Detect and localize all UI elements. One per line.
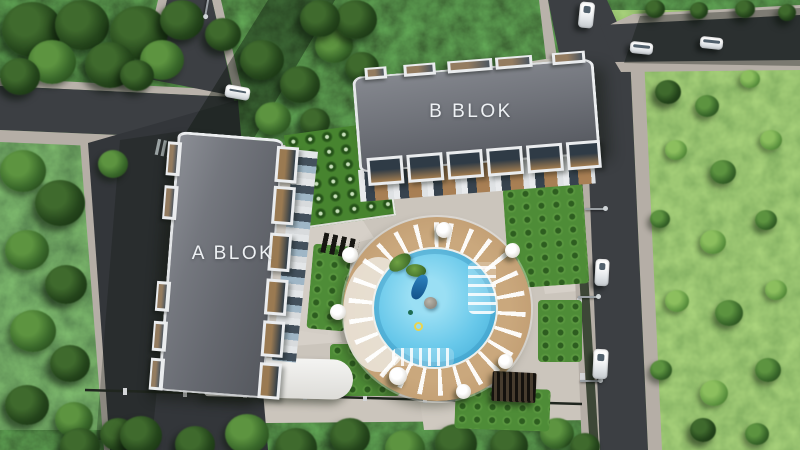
tree-canopy — [0, 58, 40, 95]
street-lamp — [580, 380, 600, 384]
balcony — [271, 186, 296, 226]
pool-umbrella — [330, 304, 346, 320]
tree-canopy — [35, 180, 85, 226]
tree-canopy — [695, 95, 719, 117]
tree-canopy — [280, 66, 320, 103]
tree-canopy — [735, 0, 755, 18]
tree-canopy — [50, 345, 90, 382]
balcony — [261, 320, 286, 358]
tree-canopy — [335, 0, 377, 39]
tree-canopy — [120, 60, 154, 91]
tree-canopy — [205, 18, 241, 51]
tree-canopy — [690, 418, 716, 442]
street-lamp — [578, 296, 598, 300]
tree-canopy — [655, 80, 681, 104]
balcony-frame — [364, 66, 387, 80]
tree-canopy — [5, 385, 49, 425]
balcony-frame — [495, 55, 533, 70]
pool-umbrella — [505, 243, 520, 258]
balcony-frame — [149, 358, 165, 391]
balcony — [486, 146, 524, 177]
balcony-frame — [152, 321, 168, 352]
car — [592, 349, 609, 380]
tree-canopy — [330, 418, 370, 450]
tree-canopy — [710, 160, 736, 184]
tree-canopy — [240, 40, 284, 80]
car-windshield — [599, 263, 606, 270]
balcony — [366, 155, 404, 186]
tree-canopy — [98, 150, 128, 178]
tree-canopy — [160, 0, 204, 40]
lamp-arm — [578, 296, 598, 298]
lamp-arm — [585, 208, 605, 210]
balcony-frame — [162, 185, 179, 220]
tree-canopy — [665, 140, 687, 160]
car-windshield — [703, 40, 719, 44]
tree-canopy — [765, 280, 787, 300]
tree-canopy — [715, 300, 743, 326]
car-windshield — [633, 45, 649, 49]
pool-umbrella — [342, 247, 358, 263]
car-windshield — [597, 353, 604, 361]
tree-canopy — [700, 380, 728, 406]
lamp-head — [596, 294, 601, 299]
tree-canopy — [255, 102, 291, 135]
tree-canopy — [740, 70, 760, 88]
tree-canopy — [45, 265, 87, 304]
pool-float — [408, 310, 413, 315]
balcony — [264, 278, 289, 316]
balcony-frame — [403, 62, 436, 76]
car-windshield — [583, 6, 590, 13]
car — [699, 36, 723, 50]
car — [578, 1, 596, 28]
block-b-label: B BLOK — [425, 101, 517, 123]
pool-umbrella — [498, 354, 513, 369]
tree-canopy — [5, 230, 49, 270]
balcony — [274, 146, 299, 184]
car — [594, 259, 609, 287]
pool-umbrella — [436, 222, 452, 238]
tree-canopy — [700, 230, 726, 254]
balcony-frame — [552, 51, 586, 66]
tree-canopy — [778, 4, 796, 21]
pool-umbrella — [456, 384, 471, 399]
pool-islet — [424, 297, 437, 309]
balcony — [566, 140, 602, 171]
pool-shelf-loungers — [468, 262, 496, 314]
pool-shelf-loungers — [392, 348, 454, 366]
swim-ring — [414, 322, 423, 331]
tree-canopy — [690, 2, 708, 19]
tree-canopy — [10, 310, 56, 352]
street-lamp — [585, 208, 605, 212]
tree-canopy — [650, 360, 672, 380]
block-a-label: A BLOK — [188, 243, 278, 265]
lamp-arm — [580, 380, 600, 382]
tree-canopy — [755, 358, 781, 382]
tree-canopy — [650, 210, 670, 228]
car — [629, 41, 653, 55]
lamp-head — [603, 206, 608, 211]
balcony-frame — [155, 281, 171, 312]
tree-canopy — [665, 290, 689, 312]
balcony-frame — [447, 58, 493, 73]
tree-canopy — [645, 0, 665, 18]
pool-umbrella — [389, 367, 407, 385]
balcony — [257, 362, 282, 400]
balcony — [446, 149, 484, 180]
tree-canopy — [120, 416, 162, 450]
lawn — [538, 300, 582, 362]
site-aerial-view: A BLOK B BLOK — [0, 0, 800, 450]
balcony-frame — [165, 141, 182, 176]
tree-canopy — [225, 414, 269, 450]
tree-canopy — [760, 130, 782, 150]
balcony — [526, 143, 564, 174]
tree-canopy — [0, 150, 46, 192]
tree-canopy — [300, 0, 340, 37]
tree-canopy — [745, 423, 769, 445]
car-windshield — [229, 88, 247, 94]
balcony — [406, 152, 444, 183]
pergola — [491, 371, 537, 403]
tree-canopy — [755, 210, 777, 230]
